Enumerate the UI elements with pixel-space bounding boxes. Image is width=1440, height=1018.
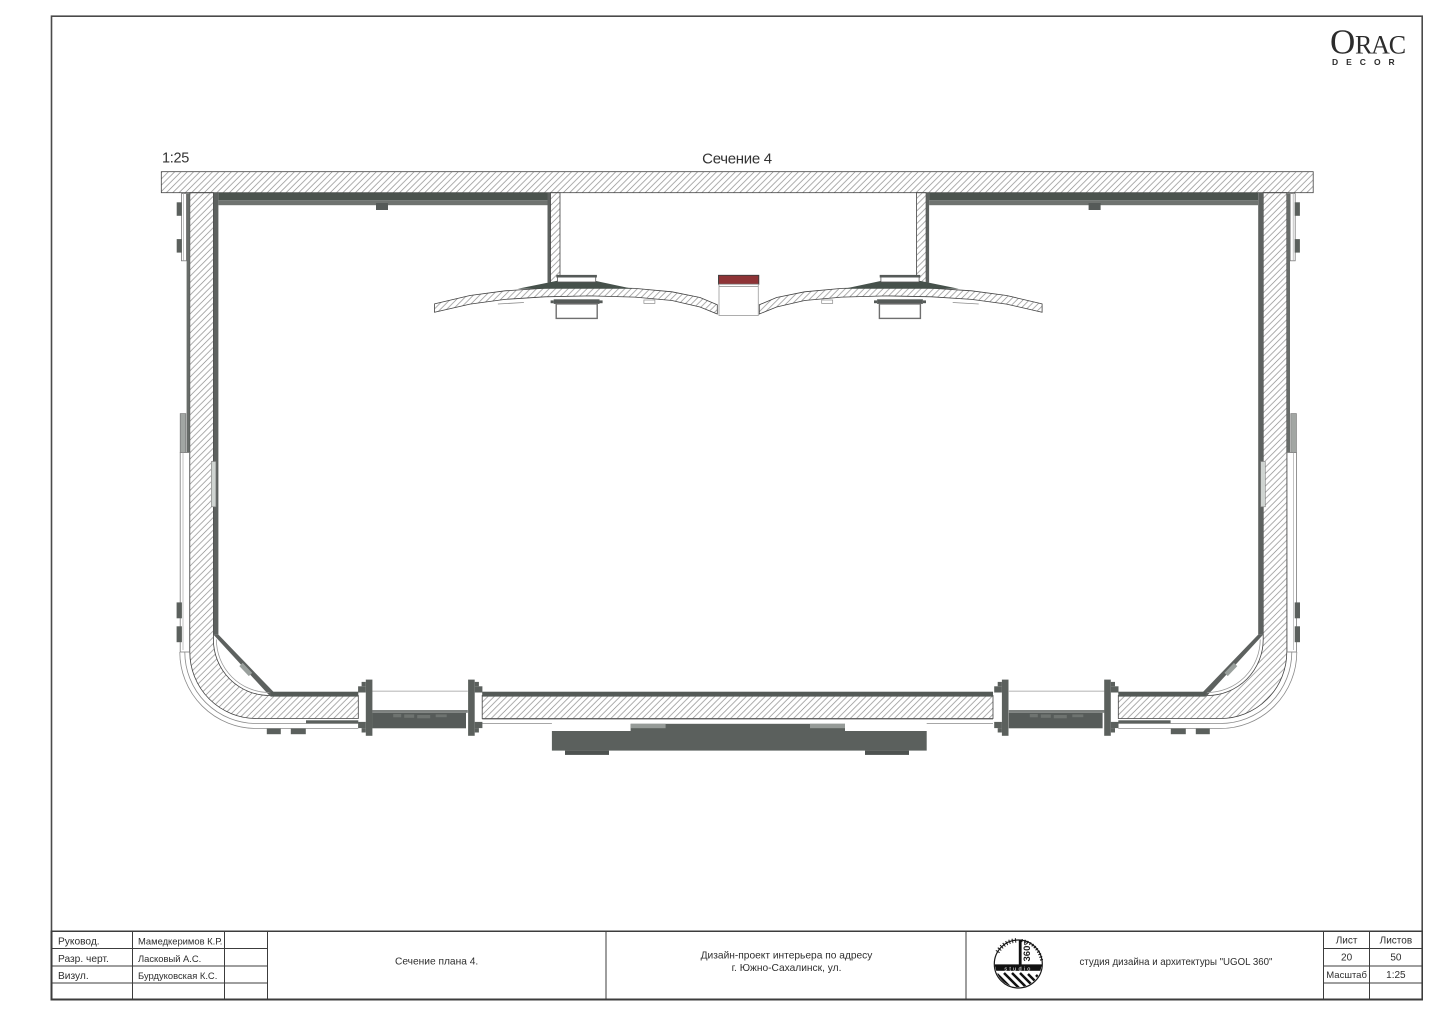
svg-text:Дизайн-проект интерьера по адр: Дизайн-проект интерьера по адресу <box>701 951 874 962</box>
svg-text:Руковод.: Руковод. <box>58 937 100 948</box>
svg-text:360°: 360° <box>1022 942 1033 962</box>
svg-text:Ласковый А.С.: Ласковый А.С. <box>138 953 201 964</box>
svg-text:Визул.: Визул. <box>58 971 89 982</box>
svg-text:1:25: 1:25 <box>1386 970 1406 981</box>
svg-text:Лист: Лист <box>1336 936 1358 947</box>
svg-text:RAC: RAC <box>1355 31 1405 60</box>
svg-text:studio: studio <box>1004 966 1032 972</box>
svg-text:Масштаб: Масштаб <box>1326 970 1367 981</box>
svg-text:1:25: 1:25 <box>162 151 189 167</box>
svg-text:г. Южно-Сахалинск, ул.: г. Южно-Сахалинск, ул. <box>732 963 842 974</box>
svg-text:Сечение плана 4.: Сечение плана 4. <box>395 957 478 968</box>
svg-text:Листов: Листов <box>1380 936 1413 947</box>
svg-text:O: O <box>1330 23 1354 62</box>
svg-text:Мамедкеримов К.Р.: Мамедкеримов К.Р. <box>138 936 222 947</box>
svg-text:50: 50 <box>1390 953 1402 964</box>
svg-text:DECOR: DECOR <box>1332 57 1403 67</box>
svg-text:Бурдуковская К.С.: Бурдуковская К.С. <box>138 970 217 981</box>
svg-text:Разр. черт.: Разр. черт. <box>58 954 109 965</box>
svg-text:студия дизайна и архитектуры ": студия дизайна и архитектуры "UGOL 360" <box>1080 957 1273 968</box>
svg-text:Сечение 4: Сечение 4 <box>702 151 772 168</box>
svg-text:20: 20 <box>1341 953 1353 964</box>
